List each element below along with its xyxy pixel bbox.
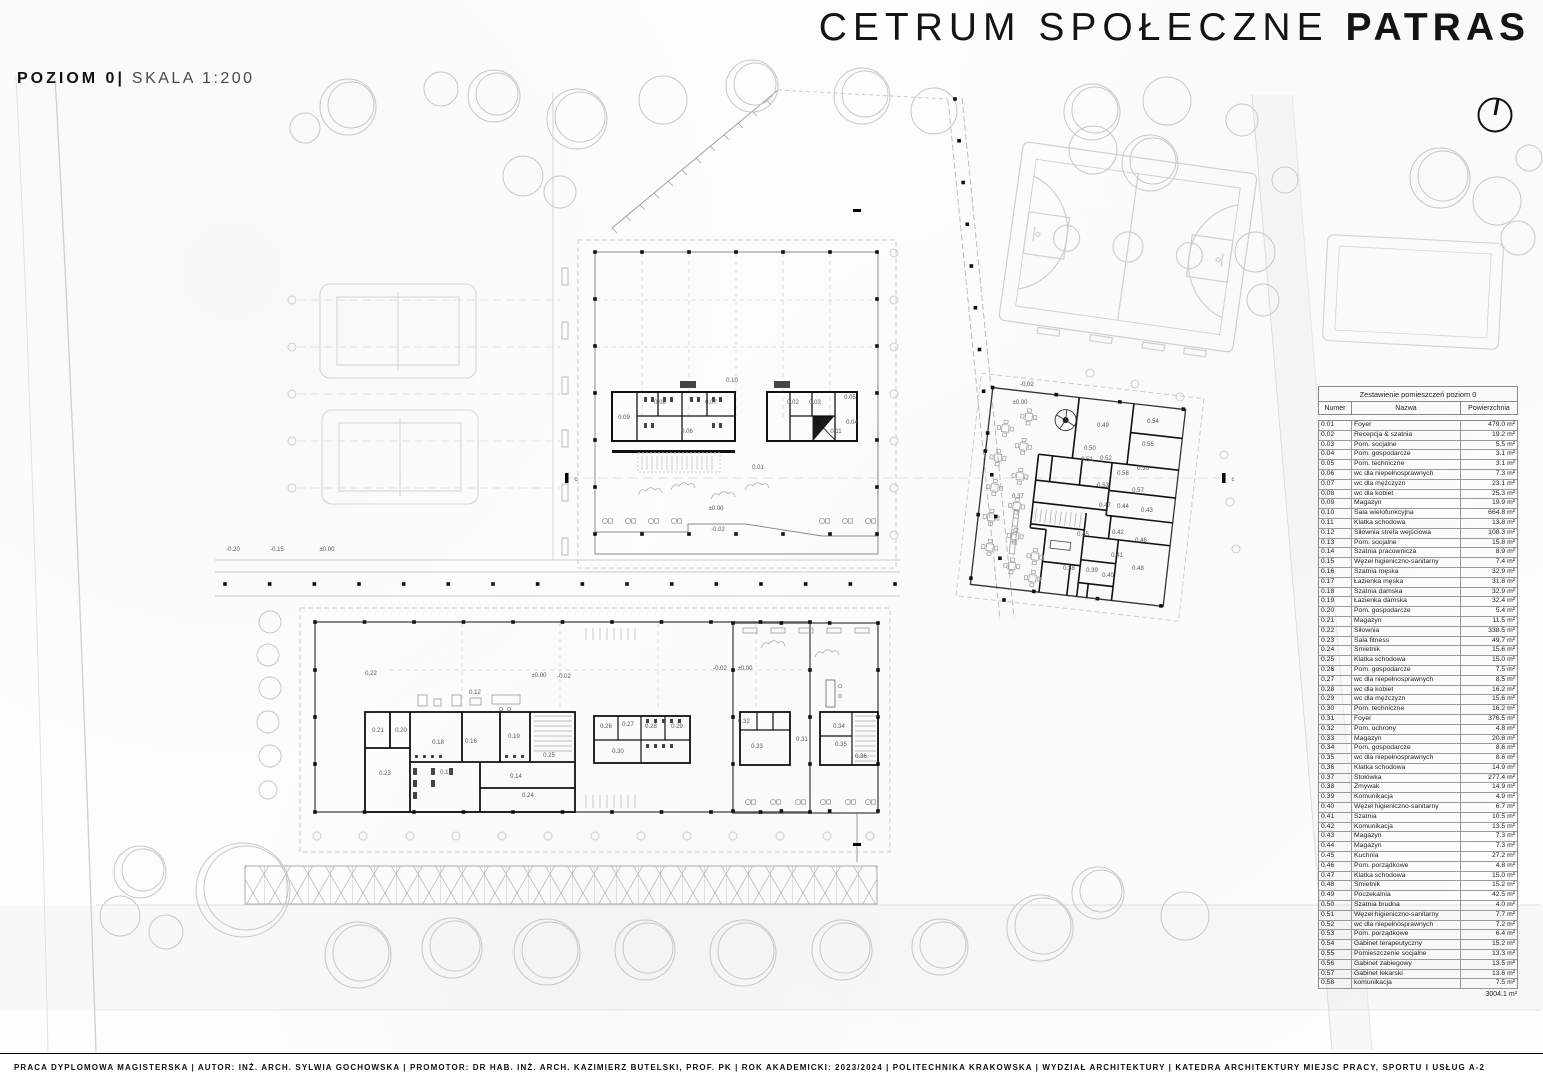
- room-schedule-table: Zestawienie pomieszczeń poziom 0 Numer N…: [1318, 386, 1518, 1000]
- room-area: 15.0 m²: [1461, 656, 1517, 665]
- room-name: Łazienka męska: [1352, 578, 1461, 587]
- svg-text:0.07: 0.07: [705, 400, 717, 406]
- svg-text:0.58: 0.58: [1117, 471, 1129, 477]
- page-title: CETRUM SPOŁECZNE PATRAS: [819, 6, 1530, 50]
- room-area: 108.3 m²: [1461, 529, 1517, 538]
- room-name: Gabinet terapeutyczny: [1352, 940, 1461, 949]
- room-number: 0.12: [1319, 529, 1352, 538]
- table-row: 0.57Gabinet lekarski13.6 m²: [1319, 970, 1517, 980]
- svg-text:0.08: 0.08: [654, 400, 666, 406]
- credits-text: PRACA DYPLOMOWA MAGISTERSKA | AUTOR: INŻ…: [14, 1063, 1485, 1072]
- room-name: Węzeł higieniczno-sanitarny: [1352, 911, 1461, 920]
- room-name: Pomieszczenie socjalne: [1352, 950, 1461, 959]
- svg-text:-0.20: -0.20: [226, 547, 240, 553]
- svg-text:0.05: 0.05: [844, 395, 856, 401]
- svg-text:-0.02: -0.02: [713, 666, 727, 672]
- room-area: 20.8 m²: [1461, 735, 1517, 744]
- table-row: 0.38Zmywak14.9 m²: [1319, 783, 1517, 793]
- pergola-trellis: [245, 866, 877, 904]
- svg-text:0.14: 0.14: [510, 774, 522, 780]
- room-area: 10.5 m²: [1461, 813, 1517, 822]
- room-number: 0.16: [1319, 568, 1352, 577]
- room-name: wc dla kobiet: [1352, 686, 1461, 695]
- room-name: Zmywak: [1352, 783, 1461, 792]
- svg-text:0.34: 0.34: [833, 724, 845, 730]
- room-name: Komunikacja: [1352, 823, 1461, 832]
- room-name: Siłownia strefa wejściowa: [1352, 529, 1461, 538]
- room-name: Pom. porządkowe: [1352, 862, 1461, 871]
- north-arrow-icon: [1474, 94, 1516, 136]
- basketball-court: [998, 141, 1258, 360]
- table-row: 0.49Poczekalnia42.5 m²: [1319, 891, 1517, 901]
- building-hall: [562, 240, 896, 568]
- room-name: Sala fitness: [1352, 637, 1461, 646]
- room-area: 4.9 m²: [1461, 793, 1517, 802]
- section-markers: [565, 209, 1226, 846]
- table-header: Numer Nazwa Powierzchnia: [1318, 402, 1518, 415]
- room-area: 15.0 m²: [1461, 872, 1517, 881]
- table-title: Zestawienie pomieszczeń poziom 0: [1318, 386, 1518, 402]
- room-number: 0.56: [1319, 960, 1352, 969]
- separator: |: [117, 70, 124, 87]
- svg-text:0.38: 0.38: [1063, 566, 1075, 572]
- table-row: 0.01Foyer479.0 m²: [1319, 421, 1517, 431]
- room-number: 0.15: [1319, 558, 1352, 567]
- svg-text:0.19: 0.19: [508, 734, 520, 740]
- room-area: 14.9 m²: [1461, 764, 1517, 773]
- table-row: 0.03Pom. socjalne5.5 m²: [1319, 441, 1517, 451]
- table-row: 0.05Pom. techniczne3.1 m²: [1319, 460, 1517, 470]
- site-plan-drawing: 0.100.090.080.070.060.020.030.050.040.11…: [0, 0, 1543, 1080]
- room-name: Kuchnia: [1352, 852, 1461, 861]
- room-number: 0.21: [1319, 617, 1352, 626]
- table-row: 0.08wc dla kobiet25.3 m²: [1319, 490, 1517, 500]
- table-row: 0.24Śmietnik15.6 m²: [1319, 646, 1517, 656]
- table-row: 0.55Pomieszczenie socjalne13.3 m²: [1319, 950, 1517, 960]
- room-name: Klatka schodowa: [1352, 872, 1461, 881]
- svg-text:0.35: 0.35: [835, 742, 847, 748]
- room-name: Węzeł higieniczno-sanitarny: [1352, 558, 1461, 567]
- room-area: 5.5 m²: [1461, 441, 1517, 450]
- room-area: 479.0 m²: [1461, 421, 1517, 430]
- svg-text:0.55: 0.55: [1142, 442, 1154, 448]
- room-number: 0.07: [1319, 480, 1352, 489]
- level-scale-label: POZIOM 0| SKALA 1:200: [17, 70, 255, 88]
- room-name: Sala wielofunkcyjna: [1352, 509, 1461, 518]
- room-area: 42.5 m²: [1461, 891, 1517, 900]
- room-area: 4.0 m²: [1461, 901, 1517, 910]
- room-area: 7.4 m²: [1461, 558, 1517, 567]
- room-number: 0.01: [1319, 421, 1352, 430]
- table-row: 0.48Śmietnik15.2 m²: [1319, 881, 1517, 891]
- credits-bar: PRACA DYPLOMOWA MAGISTERSKA | AUTOR: INŻ…: [0, 1053, 1543, 1080]
- room-name: Komunikacja: [1352, 793, 1461, 802]
- table-row: 0.02Recepcja & szatnia19.2 m²: [1319, 431, 1517, 441]
- svg-text:-0.02: -0.02: [557, 674, 571, 680]
- table-row: 0.27wc dla niepełnosprawnych8.5 m²: [1319, 676, 1517, 686]
- room-name: Pom. gospodarcze: [1352, 744, 1461, 753]
- svg-text:0.18: 0.18: [432, 740, 444, 746]
- table-row: 0.10Sala wielofunkcyjna664.8 m²: [1319, 509, 1517, 519]
- room-name: Foyer: [1352, 715, 1461, 724]
- table-body: 0.01Foyer479.0 m²0.02Recepcja & szatnia1…: [1318, 420, 1518, 989]
- svg-text:0.49: 0.49: [1097, 423, 1109, 429]
- svg-text:-0.02: -0.02: [711, 527, 725, 533]
- svg-text:0.09: 0.09: [618, 415, 630, 421]
- room-area: 7.3 m²: [1461, 470, 1517, 479]
- svg-text:0.01: 0.01: [752, 465, 764, 471]
- room-area: 32.9 m²: [1461, 588, 1517, 597]
- svg-text:0.53: 0.53: [1097, 483, 1109, 489]
- room-number: 0.04: [1319, 450, 1352, 459]
- scale-label: SKALA 1:200: [132, 70, 255, 87]
- building-toilet-block: [586, 628, 690, 808]
- table-row: 0.18Szatnia damska32.9 m²: [1319, 588, 1517, 598]
- svg-text:0.22: 0.22: [365, 671, 377, 677]
- svg-text:±0.00: ±0.00: [738, 666, 754, 672]
- table-row: 0.37Stołówka277.4 m²: [1319, 774, 1517, 784]
- svg-text:0.39: 0.39: [1086, 568, 1098, 574]
- room-number: 0.53: [1319, 930, 1352, 939]
- room-name: wc dla niepełnosprawnych: [1352, 754, 1461, 763]
- table-row: 0.40Węzeł higieniczno-sanitarny6.7 m²: [1319, 803, 1517, 813]
- room-area: 19.9 m²: [1461, 499, 1517, 508]
- room-area: 32.4 m²: [1461, 597, 1517, 606]
- svg-text:±0.00: ±0.00: [1013, 400, 1029, 406]
- svg-text:0.31: 0.31: [796, 737, 808, 743]
- building-canteen: [956, 373, 1204, 621]
- table-row: 0.09Magazyn19.9 m²: [1319, 499, 1517, 509]
- room-area: 16.2 m²: [1461, 705, 1517, 714]
- table-row: 0.13Pom. socjalne15.8 m²: [1319, 539, 1517, 549]
- room-area: 13.3 m²: [1461, 950, 1517, 959]
- table-row: 0.53Pom. porządkowe6.4 m²: [1319, 930, 1517, 940]
- room-number: 0.32: [1319, 725, 1352, 734]
- svg-text:±0.00: ±0.00: [320, 547, 336, 553]
- room-area: 27.2 m²: [1461, 852, 1517, 861]
- room-name: Gabinet zabiegowy: [1352, 960, 1461, 969]
- room-area: 664.8 m²: [1461, 509, 1517, 518]
- room-number: 0.52: [1319, 921, 1352, 930]
- room-number: 0.03: [1319, 441, 1352, 450]
- sports-field: [1322, 234, 1503, 349]
- svg-text:0.33: 0.33: [751, 744, 763, 750]
- room-number: 0.09: [1319, 499, 1352, 508]
- table-row: 0.41Szatnia10.5 m²: [1319, 813, 1517, 823]
- table-row: 0.16Szatnia męska32.9 m²: [1319, 568, 1517, 578]
- room-number: 0.39: [1319, 793, 1352, 802]
- room-name: Pom. ochrony: [1352, 725, 1461, 734]
- room-area: 15.6 m²: [1461, 695, 1517, 704]
- table-row: 0.32Pom. ochrony4.8 m²: [1319, 725, 1517, 735]
- grid-bubbles: [288, 249, 1240, 840]
- room-name: Pom. socjalne: [1352, 441, 1461, 450]
- col-nazwa: Nazwa: [1352, 402, 1461, 414]
- svg-text:0.30: 0.30: [612, 749, 624, 755]
- room-name: Stołówka: [1352, 774, 1461, 783]
- svg-text:±0.00: ±0.00: [709, 506, 725, 512]
- room-number: 0.25: [1319, 656, 1352, 665]
- room-area: 5.4 m²: [1461, 607, 1517, 616]
- room-area: 15.8 m²: [1461, 539, 1517, 548]
- room-number: 0.36: [1319, 764, 1352, 773]
- room-number: 0.34: [1319, 744, 1352, 753]
- room-number: 0.28: [1319, 686, 1352, 695]
- room-number: 0.48: [1319, 881, 1352, 890]
- level-label: POZIOM 0: [17, 70, 117, 87]
- room-number: 0.35: [1319, 754, 1352, 763]
- room-name: Pom. porządkowe: [1352, 930, 1461, 939]
- room-name: Gabinet lekarski: [1352, 970, 1461, 979]
- room-name: Magazyn: [1352, 499, 1461, 508]
- table-row: 0.04Pom. gospodarcze3.1 m²: [1319, 450, 1517, 460]
- room-area: 7.3 m²: [1461, 842, 1517, 851]
- room-area: 376.5 m²: [1461, 715, 1517, 724]
- table-row: 0.25Klatka schodowa15.0 m²: [1319, 656, 1517, 666]
- room-name: Klatka schodowa: [1352, 764, 1461, 773]
- svg-text:0.52: 0.52: [1100, 456, 1112, 462]
- room-area: 3.1 m²: [1461, 450, 1517, 459]
- table-row: 0.17Łazienka męska31.8 m²: [1319, 578, 1517, 588]
- room-name: wc dla niepełnosprawnych: [1352, 921, 1461, 930]
- room-number: 0.19: [1319, 597, 1352, 606]
- svg-text:0.21: 0.21: [372, 728, 384, 734]
- room-area: 15.2 m²: [1461, 940, 1517, 949]
- room-name: Pom. gospodarcze: [1352, 607, 1461, 616]
- room-area: 7.5 m²: [1461, 979, 1517, 988]
- svg-text:0.36: 0.36: [855, 754, 867, 760]
- room-number: 0.30: [1319, 705, 1352, 714]
- room-area: 8.6 m²: [1461, 744, 1517, 753]
- room-area: 8.5 m²: [1461, 676, 1517, 685]
- room-number: 0.51: [1319, 911, 1352, 920]
- svg-text:0.32: 0.32: [738, 719, 750, 725]
- svg-text:0.28: 0.28: [645, 724, 657, 730]
- room-area: 31.8 m²: [1461, 578, 1517, 587]
- svg-text:0.03: 0.03: [809, 400, 821, 406]
- room-area: 6.7 m²: [1461, 803, 1517, 812]
- room-number: 0.47: [1319, 872, 1352, 881]
- svg-text:0.27: 0.27: [622, 722, 634, 728]
- svg-text:c: c: [575, 477, 578, 483]
- room-area: 6.4 m²: [1461, 930, 1517, 939]
- svg-text:0.12: 0.12: [469, 690, 481, 696]
- svg-text:0.06: 0.06: [681, 429, 693, 435]
- svg-text:0.57: 0.57: [1132, 488, 1144, 494]
- svg-text:c: c: [1232, 477, 1235, 483]
- room-name: Szatnia męska: [1352, 568, 1461, 577]
- table-row: 0.14Szatnia pracownicza8.9 m²: [1319, 548, 1517, 558]
- room-number: 0.37: [1319, 774, 1352, 783]
- table-row: 0.33Magazyn20.8 m²: [1319, 735, 1517, 745]
- table-row: 0.58komunikacja7.5 m²: [1319, 979, 1517, 989]
- svg-text:0.48: 0.48: [1132, 566, 1144, 572]
- room-name: wc dla mężczyzn: [1352, 480, 1461, 489]
- room-number: 0.40: [1319, 803, 1352, 812]
- table-row: 0.12Siłownia strefa wejściowa108.3 m²: [1319, 529, 1517, 539]
- table-row: 0.43Magazyn7.3 m²: [1319, 832, 1517, 842]
- building-foyer: [733, 623, 878, 813]
- room-number: 0.10: [1319, 509, 1352, 518]
- room-area: 8.9 m²: [1461, 548, 1517, 557]
- svg-text:0.46: 0.46: [1135, 538, 1147, 544]
- room-area: 49.7 m²: [1461, 637, 1517, 646]
- room-name: Siłownia: [1352, 627, 1461, 636]
- room-number: 0.42: [1319, 823, 1352, 832]
- room-area: 13.6 m²: [1461, 970, 1517, 979]
- room-name: Pom. techniczne: [1352, 705, 1461, 714]
- room-number: 0.46: [1319, 862, 1352, 871]
- table-row: 0.31Foyer376.5 m²: [1319, 715, 1517, 725]
- room-area: 3.1 m²: [1461, 460, 1517, 469]
- room-number: 0.24: [1319, 646, 1352, 655]
- room-name: Szatnia: [1352, 813, 1461, 822]
- table-row: 0.07wc dla mężczyzn23.1 m²: [1319, 480, 1517, 490]
- room-name: wc dla mężczyzn: [1352, 695, 1461, 704]
- svg-text:0.37: 0.37: [1012, 494, 1024, 500]
- room-area: 15.6 m²: [1461, 646, 1517, 655]
- table-row: 0.29wc dla mężczyzn15.6 m²: [1319, 695, 1517, 705]
- table-row: 0.56Gabinet zabiegowy13.5 m²: [1319, 960, 1517, 970]
- svg-text:0.41: 0.41: [1111, 553, 1123, 559]
- room-number: 0.45: [1319, 852, 1352, 861]
- room-name: wc dla kobiet: [1352, 490, 1461, 499]
- room-number: 0.43: [1319, 832, 1352, 841]
- svg-text:0.02: 0.02: [787, 400, 799, 406]
- room-name: Klatka schodowa: [1352, 519, 1461, 528]
- table-row: 0.35wc dla niepełnosprawnych8.6 m²: [1319, 754, 1517, 764]
- room-name: Pom. techniczne: [1352, 460, 1461, 469]
- room-number: 0.31: [1319, 715, 1352, 724]
- table-row: 0.54Gabinet terapeutyczny15.2 m²: [1319, 940, 1517, 950]
- room-name: Foyer: [1352, 421, 1461, 430]
- room-name: Pom. gospodarcze: [1352, 450, 1461, 459]
- table-row: 0.21Magazyn11.5 m²: [1319, 617, 1517, 627]
- table-row: 0.28wc dla kobiet16.2 m²: [1319, 686, 1517, 696]
- table-row: 0.22Siłownia338.5 m²: [1319, 627, 1517, 637]
- room-number: 0.57: [1319, 970, 1352, 979]
- svg-text:0.42: 0.42: [1112, 530, 1124, 536]
- room-area: 32.9 m²: [1461, 568, 1517, 577]
- room-number: 0.26: [1319, 666, 1352, 675]
- room-number: 0.06: [1319, 470, 1352, 479]
- table-row: 0.36Klatka schodowa14.9 m²: [1319, 764, 1517, 774]
- svg-text:0.56: 0.56: [1137, 466, 1149, 472]
- room-number: 0.13: [1319, 539, 1352, 548]
- room-number: 0.11: [1319, 519, 1352, 528]
- room-number: 0.14: [1319, 548, 1352, 557]
- room-number: 0.20: [1319, 607, 1352, 616]
- room-name: Pom. socjalne: [1352, 539, 1461, 548]
- svg-text:±0.00: ±0.00: [532, 673, 548, 679]
- table-row: 0.26Pom. gospodarcze7.5 m²: [1319, 666, 1517, 676]
- room-area: 277.4 m²: [1461, 774, 1517, 783]
- svg-text:0.24: 0.24: [522, 793, 534, 799]
- room-number: 0.23: [1319, 637, 1352, 646]
- svg-text:0.17: 0.17: [440, 770, 452, 776]
- svg-text:0.29: 0.29: [671, 724, 683, 730]
- table-row: 0.15Węzeł higieniczno-sanitarny7.4 m²: [1319, 558, 1517, 568]
- room-number: 0.38: [1319, 783, 1352, 792]
- table-row: 0.44Magazyn7.3 m²: [1319, 842, 1517, 852]
- table-row: 0.30Pom. techniczne16.2 m²: [1319, 705, 1517, 715]
- room-number: 0.41: [1319, 813, 1352, 822]
- table-row: 0.42Komunikacja13.5 m²: [1319, 823, 1517, 833]
- room-name: Magazyn: [1352, 735, 1461, 744]
- table-row: 0.19Łazienka damska32.4 m²: [1319, 597, 1517, 607]
- room-number: 0.27: [1319, 676, 1352, 685]
- room-area: 7.5 m²: [1461, 666, 1517, 675]
- room-number: 0.22: [1319, 627, 1352, 636]
- room-area: 23.1 m²: [1461, 480, 1517, 489]
- title-bold: PATRAS: [1345, 6, 1530, 49]
- svg-text:0.47: 0.47: [1099, 503, 1111, 509]
- room-area: 13.8 m²: [1461, 519, 1517, 528]
- svg-text:0.26: 0.26: [600, 724, 612, 730]
- room-number: 0.08: [1319, 490, 1352, 499]
- room-area: 4.8 m²: [1461, 862, 1517, 871]
- room-number: 0.18: [1319, 588, 1352, 597]
- room-area: 13.5 m²: [1461, 960, 1517, 969]
- room-name: Łazienka damska: [1352, 597, 1461, 606]
- room-area: 16.2 m²: [1461, 686, 1517, 695]
- room-name: Śmietnik: [1352, 881, 1461, 890]
- room-number: 0.33: [1319, 735, 1352, 744]
- table-row: 0.45Kuchnia27.2 m²: [1319, 852, 1517, 862]
- room-name: wc dla niepełnosprawnych: [1352, 676, 1461, 685]
- table-row: 0.23Sala fitness49.7 m²: [1319, 637, 1517, 647]
- svg-text:0.20: 0.20: [395, 728, 407, 734]
- table-row: 0.51Węzeł higieniczno-sanitarny7.7 m²: [1319, 911, 1517, 921]
- table-row: 0.11Klatka schodowa13.8 m²: [1319, 519, 1517, 529]
- room-number: 0.49: [1319, 891, 1352, 900]
- svg-text:0.43: 0.43: [1141, 508, 1153, 514]
- room-area: 4.8 m²: [1461, 725, 1517, 734]
- room-name: wc dla niepełnosprawnych: [1352, 470, 1461, 479]
- title-regular: CETRUM SPOŁECZNE: [819, 6, 1329, 49]
- room-number: 0.54: [1319, 940, 1352, 949]
- room-area: 11.5 m²: [1461, 617, 1517, 626]
- table-row: 0.20Pom. gospodarcze5.4 m²: [1319, 607, 1517, 617]
- room-area: 13.5 m²: [1461, 823, 1517, 832]
- room-number: 0.44: [1319, 842, 1352, 851]
- table-row: 0.34Pom. gospodarcze8.6 m²: [1319, 744, 1517, 754]
- room-number: 0.17: [1319, 578, 1352, 587]
- room-area: 19.2 m²: [1461, 431, 1517, 440]
- svg-text:0.50: 0.50: [1084, 446, 1096, 452]
- svg-text:0.23: 0.23: [379, 771, 391, 777]
- room-name: Magazyn: [1352, 617, 1461, 626]
- room-area: 15.2 m²: [1461, 881, 1517, 890]
- room-name: Klatka schodowa: [1352, 656, 1461, 665]
- room-area: 7.2 m²: [1461, 921, 1517, 930]
- room-area: 7.7 m²: [1461, 911, 1517, 920]
- room-name: komunikacja: [1352, 979, 1461, 988]
- svg-text:-0.15: -0.15: [270, 547, 284, 553]
- room-number: 0.55: [1319, 950, 1352, 959]
- table-row: 0.52wc dla niepełnosprawnych7.2 m²: [1319, 921, 1517, 931]
- table-total: 3004.1 m²: [1318, 989, 1518, 1000]
- room-area: 14.9 m²: [1461, 783, 1517, 792]
- table-row: 0.47Klatka schodowa15.0 m²: [1319, 872, 1517, 882]
- svg-text:0.04: 0.04: [846, 420, 858, 426]
- room-number: 0.05: [1319, 460, 1352, 469]
- room-number: 0.02: [1319, 431, 1352, 440]
- table-row: 0.50Szatnia brudna4.0 m²: [1319, 901, 1517, 911]
- room-name: Węzeł higieniczno-sanitarny: [1352, 803, 1461, 812]
- room-area: 25.3 m²: [1461, 490, 1517, 499]
- col-powierzchnia: Powierzchnia: [1461, 402, 1517, 414]
